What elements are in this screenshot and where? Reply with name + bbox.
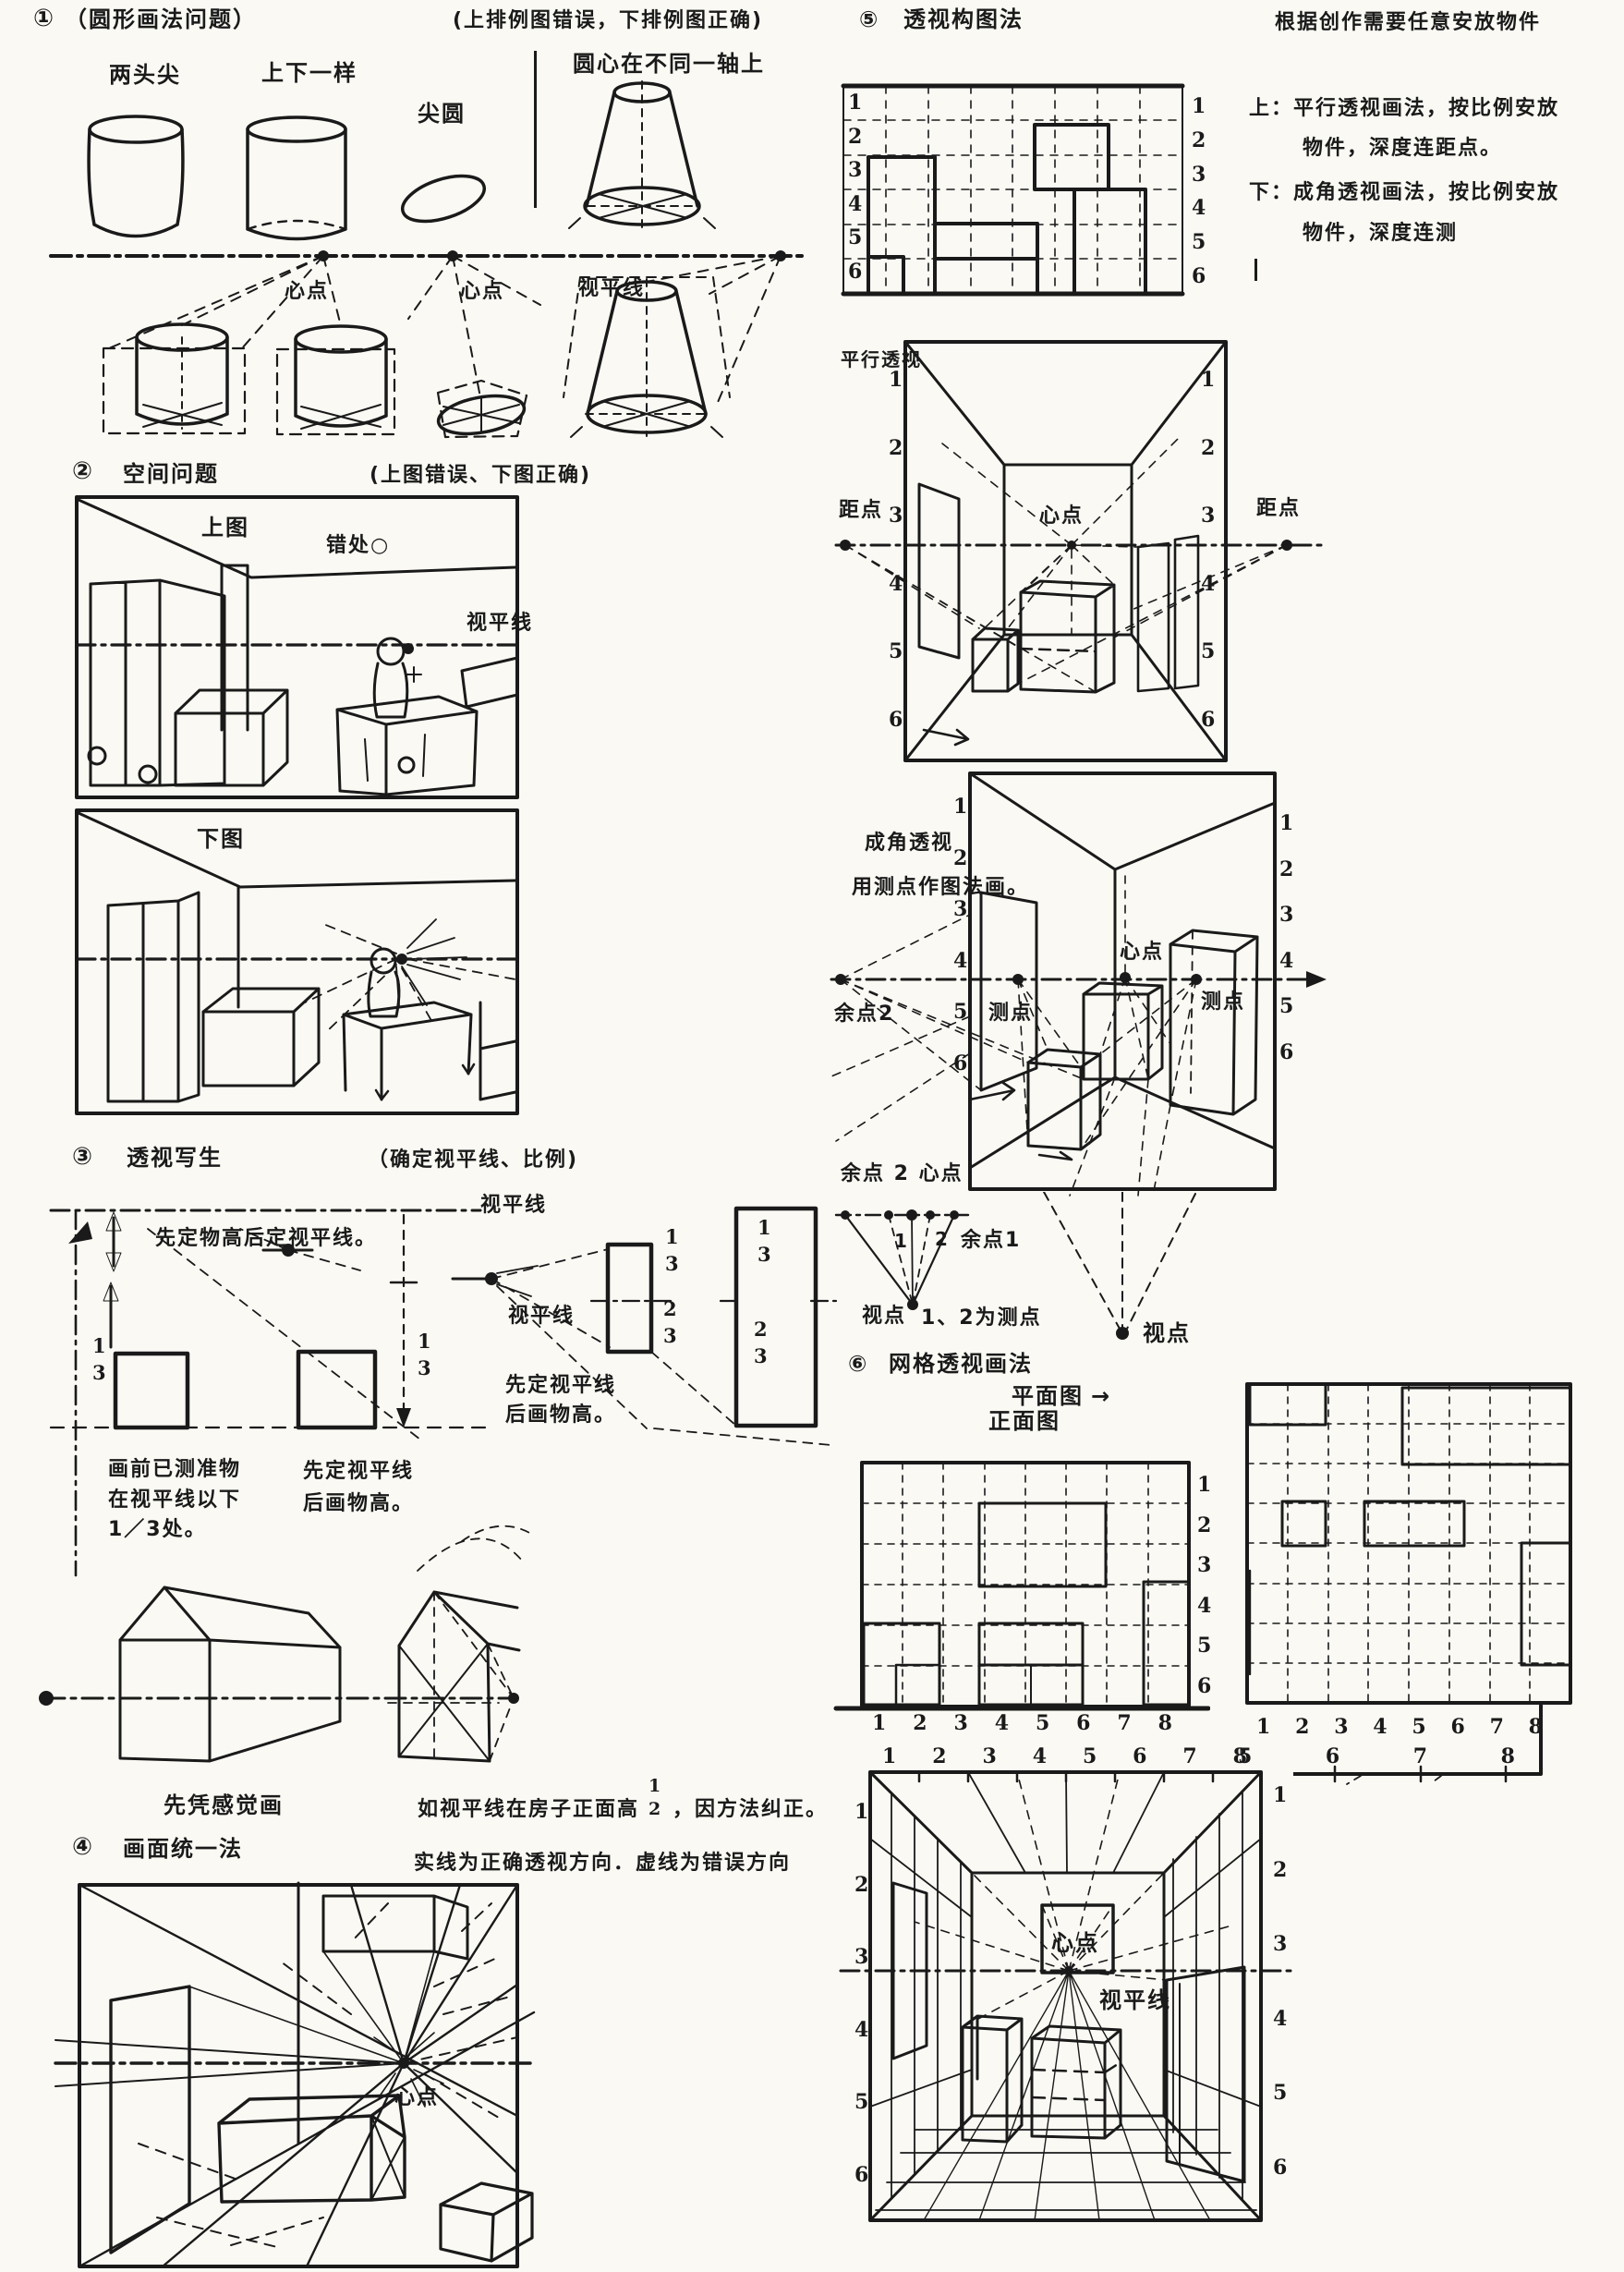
section6-number: ⑥ (848, 1352, 868, 1378)
section1-note: (上排例图错误，下排例图正确) (453, 9, 763, 32)
section1-title: （圆形画法问题） (65, 7, 257, 33)
arrow-right-icon: → (1091, 1383, 1111, 1409)
section3-number: ③ (72, 1144, 94, 1172)
section6-title: 网格透视画法 (889, 1352, 1033, 1378)
perspective-sketching-diagram (28, 1192, 841, 1829)
scale-number: 3 (1192, 164, 1206, 185)
scale-number: 1 (1192, 96, 1206, 116)
item-bottom-prefix: 下： (1249, 181, 1293, 204)
stray-tick (1254, 259, 1257, 281)
grid5-right-scale: 123456 (1192, 96, 1206, 286)
section5-number: ⑤ (859, 7, 879, 33)
plan-view-grid (1242, 1380, 1575, 1709)
item-bottom-line2: 物件，深度连测 (1303, 222, 1458, 245)
item-top-prefix: 上： (1249, 97, 1293, 120)
scale-number: 1 (1256, 1717, 1270, 1737)
parallel-perspective-room (831, 333, 1326, 767)
picture-unification-diagram (54, 1880, 536, 2272)
section3-note: （确定视平线、比例) (368, 1148, 578, 1172)
front-view-grid (831, 1458, 1210, 1717)
section5-header-right: 根据创作需要任意安放物件 (1275, 11, 1541, 34)
item-top-line1: 平行透视画法，按比例安放 (1293, 97, 1559, 120)
scale-number: 6 (1192, 266, 1206, 286)
scale-number: 4 (1192, 198, 1206, 218)
section1-number: ① (33, 6, 55, 33)
label-plan-view: 平面图→ (1012, 1384, 1111, 1410)
scanned-perspective-tutorial-page: ① （圆形画法问题） (上排例图错误，下排例图正确) 两头尖 上下一样 尖圆 圆… (0, 0, 1624, 2272)
item-top-line2: 物件，深度连距点。 (1303, 137, 1502, 160)
ruler-extension (1293, 1700, 1570, 1785)
scale-number: 2 (1192, 130, 1206, 151)
viewpoint-fan-diagram (827, 1192, 1289, 1354)
composition-plan-grid (836, 79, 1192, 300)
column-divider (534, 51, 537, 208)
circle-drawing-diagram (0, 74, 822, 462)
space-problem-diagram (37, 480, 540, 1127)
section3-title: 透视写生 (127, 1146, 223, 1172)
grid-perspective-room (836, 1742, 1293, 2272)
section4-number: ④ (72, 1834, 94, 1862)
section4-note: 实线为正确透视方向．虚线为错误方向 (414, 1852, 791, 1875)
scale-number: 5 (1192, 232, 1206, 252)
item-bottom-line1: 成角透视画法，按比例安放 (1293, 181, 1559, 204)
angular-perspective-room (827, 772, 1330, 1197)
label-front-view: 正面图 (988, 1409, 1060, 1435)
section5-title: 透视构图法 (903, 7, 1024, 33)
section4-title: 画面统一法 (123, 1837, 243, 1863)
